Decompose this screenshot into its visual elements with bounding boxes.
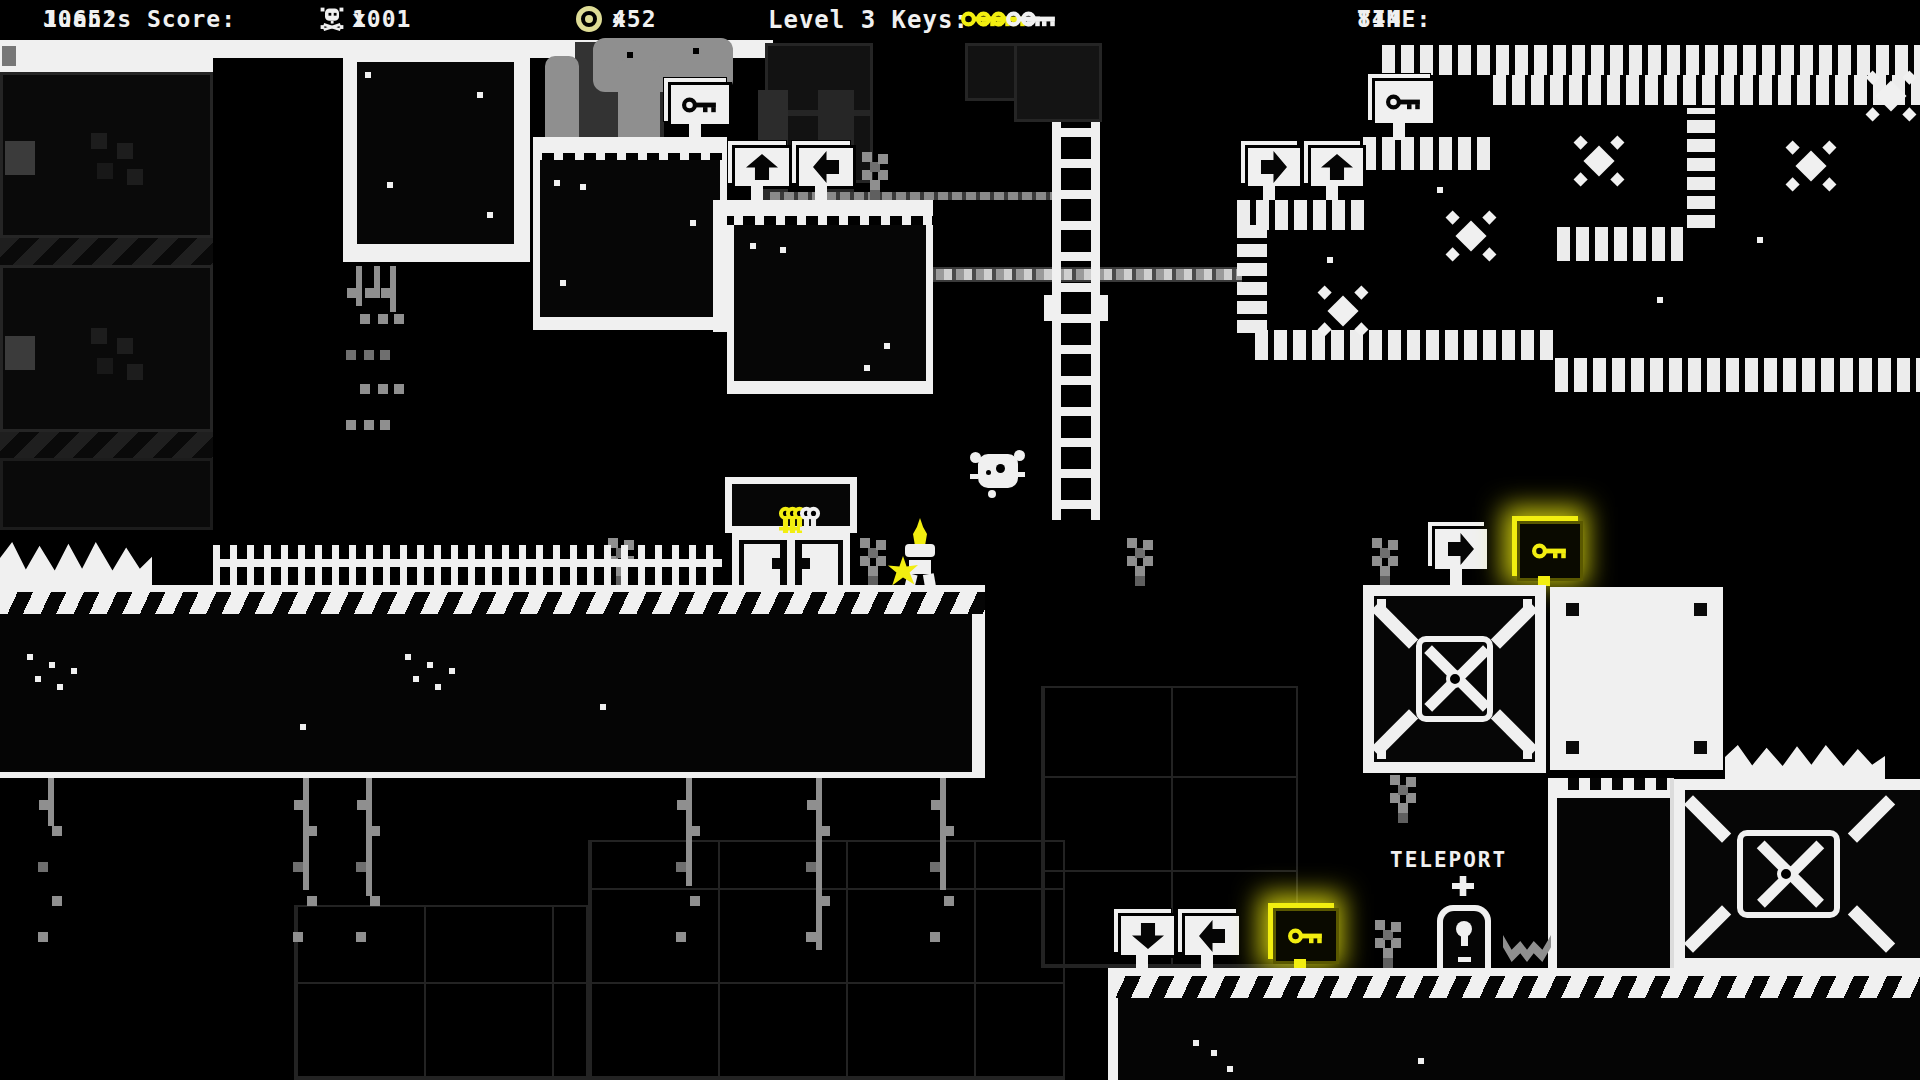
vine: [366, 778, 372, 896]
framed-block: [1548, 778, 1674, 968]
x-brace-crate: [1674, 779, 1920, 969]
ladder-tab: [1100, 295, 1108, 321]
key-icon: [1288, 925, 1324, 947]
sign-arrow-up-mid: [727, 140, 787, 184]
gray-plant: [1390, 775, 1400, 785]
sign-key-glow-bottom: [1268, 903, 1334, 959]
fence: [213, 545, 722, 587]
sign-key-cave: [1367, 73, 1431, 121]
sign-key-glow-crates: [1512, 516, 1578, 576]
dark-crate-field: [294, 905, 588, 1080]
arrow-up-icon: [746, 154, 778, 180]
teleporter: [1437, 905, 1491, 969]
spikes: [0, 542, 152, 588]
x-brace-crate: [1363, 585, 1546, 773]
vine: [390, 266, 396, 312]
cave-crystal: [1583, 145, 1614, 176]
teleport-label: TELEPORT: [1390, 848, 1507, 872]
keys-label: Level 3 Keys:: [768, 6, 969, 34]
key-icon: [682, 94, 718, 116]
time-value: 844: [1357, 6, 1402, 32]
sign-arrow-left-bottom: [1177, 908, 1237, 953]
rail: [770, 192, 1052, 200]
player-flame: [913, 518, 927, 544]
white-crate: [1550, 587, 1723, 770]
platform-body: [1108, 998, 1920, 1080]
key-door-machine: [725, 477, 857, 533]
gray-plant: [862, 152, 872, 162]
sign-arrow-left-mid: [791, 140, 851, 184]
skull-enemy: [970, 450, 1024, 498]
arrow-up-icon: [1321, 154, 1353, 180]
sign-arrow-right-crates: [1427, 521, 1485, 567]
platform-top: [1108, 968, 1920, 976]
sign-arrow-right-cave: [1240, 140, 1298, 184]
arrow-left-icon: [1199, 920, 1225, 952]
gray-plant: [860, 538, 870, 548]
framed-block: [533, 160, 727, 330]
platform-bottom: [0, 772, 985, 778]
arrow-right-icon: [1448, 533, 1474, 565]
vine: [356, 266, 362, 306]
framed-block: [727, 225, 933, 394]
platform: [533, 137, 727, 153]
tree-trunk: [545, 56, 579, 138]
platform: [713, 200, 933, 216]
vine: [303, 778, 309, 890]
arrow-right-icon: [1261, 151, 1287, 183]
gray-plant: [1127, 538, 1137, 548]
ladder-tab: [1044, 295, 1052, 321]
double-doors: [732, 533, 850, 588]
cave-structure: [1237, 37, 1920, 397]
vine: [940, 778, 946, 890]
skull-crossbones-icon: [318, 5, 346, 33]
vine: [48, 778, 54, 826]
ladder: [1052, 122, 1100, 520]
gray-plant: [1375, 920, 1385, 930]
vine: [816, 778, 822, 950]
metal-crate: [0, 458, 213, 530]
arrow-down-icon: [1132, 923, 1164, 949]
skull-count: 1001: [352, 6, 411, 32]
vine: [686, 778, 692, 886]
platform-body: [0, 614, 985, 772]
sign-arrow-down-bottom: [1113, 908, 1172, 953]
coin-count: 452: [612, 6, 657, 32]
dark-crate-field: [588, 840, 1065, 1080]
platform-zigzag: [0, 592, 985, 614]
coin-icon: [576, 6, 602, 32]
metal-crate: [0, 72, 213, 238]
platform-top: [0, 585, 985, 592]
plus-icon: [1452, 876, 1474, 896]
cave-crystal: [1455, 220, 1486, 251]
ceiling-detail: [2, 46, 16, 66]
score-value: 10652: [43, 6, 117, 32]
cave-crystal: [1327, 295, 1358, 326]
hud-bar: Juan's Score: 10652 x 1001 x 452 Level 3…: [0, 0, 1920, 38]
cave-crystal: [1795, 150, 1826, 181]
hatch-band: [0, 238, 213, 265]
sign-arrow-up-cave: [1303, 140, 1361, 184]
ceiling-strip: [0, 40, 213, 72]
gray-plant: [1372, 538, 1382, 548]
spikes: [1725, 745, 1885, 779]
key-icon: [1532, 540, 1568, 562]
bat-icon: [1503, 935, 1551, 962]
platform-teeth: [713, 216, 933, 225]
framed-block: [343, 50, 530, 262]
hatch-band: [0, 432, 213, 458]
platform-zigzag: [1108, 976, 1920, 998]
game-canvas[interactable]: TELEPORT Juan's Score: 10652: [0, 0, 1920, 1080]
dark-crate: [1014, 43, 1102, 122]
sign-key-upper: [663, 77, 727, 122]
arrow-left-icon: [813, 151, 839, 183]
metal-crate: [0, 265, 213, 432]
tree-trunk: [618, 60, 660, 138]
key-icon: [1386, 91, 1422, 113]
vine: [374, 266, 380, 298]
